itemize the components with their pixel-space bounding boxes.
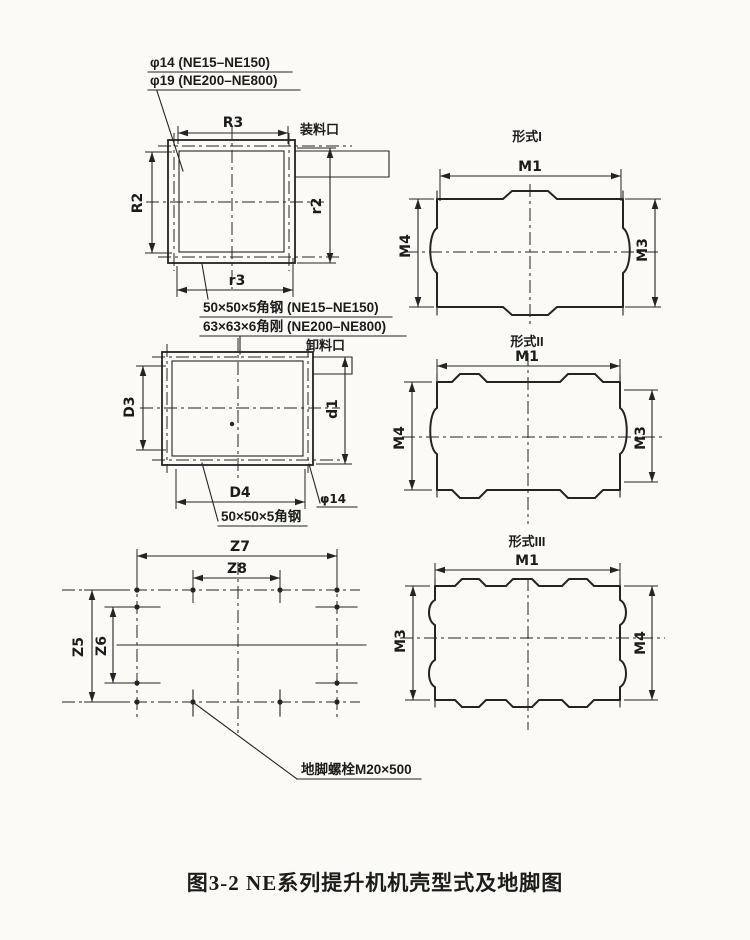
dim-label-r3-top: R3 [223, 115, 244, 131]
hole-label-phi14: φ14 [320, 492, 346, 506]
shell-type-1: 形式I M1 M4 M3 [398, 129, 661, 326]
dim-label-r2-right: r2 [309, 198, 325, 215]
dim-label-z8: Z8 [227, 561, 247, 577]
angle-steel-note-3: 50×50×5角钢 [221, 508, 301, 524]
dim-label-m4: M4 [633, 631, 649, 655]
square-section-view: R3 R2 r2 r3 装料口 50×50×5角钢 (NE15–NE150) 6… [130, 115, 406, 354]
hole-leader [309, 464, 320, 503]
shell-type-2: 形式II M1 M4 M3 [392, 334, 662, 524]
dim-label-d1: d1 [325, 399, 341, 419]
discharge-port-outline [313, 357, 352, 374]
bolt-note-leader [194, 703, 297, 779]
dim-label-m3: M3 [635, 238, 651, 262]
port-label-inlet: 装料口 [299, 122, 339, 137]
dim-label-m1: M1 [518, 159, 542, 175]
dim-label-r3-bottom: r3 [229, 273, 246, 289]
technical-drawing: φ14 (NE15–NE150) φ19 (NE200–NE800) R3 R2 [0, 0, 750, 940]
axis-centerlines [140, 338, 340, 480]
dim-label-m3: M3 [633, 426, 649, 450]
port-label-discharge: 卸料口 [306, 338, 345, 353]
dim-label-r2-left: R2 [130, 193, 146, 214]
dim-label-m1: M1 [515, 349, 539, 365]
axis-centerlines [405, 184, 660, 326]
dim-label-z7: Z7 [230, 539, 250, 555]
hole-size-note: φ14 (NE15–NE150) φ19 (NE200–NE800) [148, 55, 300, 171]
hole-note-line2: φ19 (NE200–NE800) [150, 73, 277, 88]
dim-label-d4: D4 [229, 485, 251, 501]
shell-type-1-title: 形式I [512, 129, 542, 144]
figure-caption: 图3-2 NE系列提升机机壳型式及地脚图 [187, 871, 563, 895]
scanned-technical-drawing-page: φ14 (NE15–NE150) φ19 (NE200–NE800) R3 R2 [0, 0, 750, 940]
center-mark [230, 422, 234, 426]
shell-type-3-title: 形式III [509, 534, 546, 549]
bolt-tick-marks [105, 607, 357, 716]
angle-steel-note-2: 63×63×6角刚 (NE200–NE800) [203, 318, 386, 334]
dim-label-m4: M4 [398, 234, 414, 258]
rect-section-view: 卸料口 D3 d1 D4 φ14 50×50×5角钢 [122, 338, 357, 526]
dim-label-z5: Z5 [71, 637, 87, 657]
anchor-bolt-dots [134, 587, 339, 704]
shell-type-3: 形式III M1 M3 M4 [393, 534, 665, 730]
shell-type-2-title: 形式II [510, 334, 543, 349]
dim-label-m3: M3 [393, 629, 409, 653]
anchor-bolt-note: 地脚螺栓M20×500 [301, 761, 412, 777]
dim-label-m1: M1 [515, 553, 539, 569]
hole-note-line1: φ14 (NE15–NE150) [150, 55, 270, 70]
angle-steel-note-1: 50×50×5角钢 (NE15–NE150) [203, 299, 379, 315]
dim-label-d3: D3 [122, 396, 138, 417]
dim-label-z6: Z6 [94, 636, 110, 656]
dim-label-m4: M4 [392, 426, 408, 450]
axis-centerlines [402, 353, 662, 524]
foundation-plan: Z7 Z8 Z5 Z6 [62, 539, 421, 779]
note-leader [202, 463, 218, 521]
inlet-port-outline [295, 151, 389, 177]
note-leader [202, 264, 208, 299]
